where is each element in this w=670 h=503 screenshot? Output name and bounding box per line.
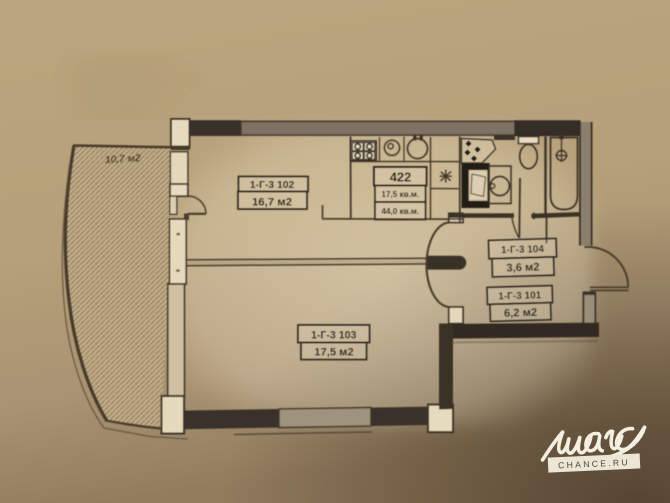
svg-text:17,5 кв.м.: 17,5 кв.м. — [381, 190, 419, 199]
svg-text:1-Г-3 103: 1-Г-3 103 — [311, 329, 357, 341]
svg-text:17,5 м2: 17,5 м2 — [314, 347, 353, 359]
svg-text:16,7 м2: 16,7 м2 — [252, 197, 292, 209]
svg-text:6,2 м2: 6,2 м2 — [504, 307, 537, 320]
svg-text:44,0 кв.м.: 44,0 кв.м. — [381, 207, 419, 216]
svg-text:1-Г-3 102: 1-Г-3 102 — [250, 180, 295, 191]
svg-text:10,7 м2: 10,7 м2 — [105, 153, 142, 166]
svg-text:422: 422 — [390, 170, 412, 185]
svg-text:1-Г-3 101: 1-Г-3 101 — [498, 290, 542, 302]
svg-text:1-Г-3 104: 1-Г-3 104 — [501, 244, 545, 256]
svg-text:3,6 м2: 3,6 м2 — [506, 262, 539, 275]
